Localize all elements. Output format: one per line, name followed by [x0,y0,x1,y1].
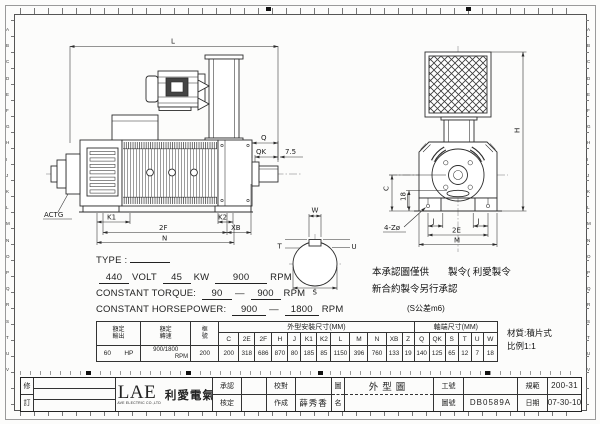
dim-value: 318 [239,346,255,362]
work-no-value [464,378,517,395]
col-header: 2E [239,333,255,346]
dim-value: 125 [429,346,445,362]
frame-no-header: 框 號 [191,322,219,346]
table-group-header-row: 額定 輸出 額定 轉速 框 號 外型安裝尺寸(MM) 軸端尺寸(MM) [97,322,498,333]
dim-label-18: 18 [400,192,408,201]
constant-hp-label: CONSTANT HORSEPOWER: [96,304,226,315]
type-value [130,262,170,263]
approve-label: 承認 [213,378,241,395]
logo-lae-text: LAE [118,385,156,401]
col-header: T [458,333,471,346]
dim-label-j-left: J [432,218,435,226]
logo-chinese-text: 利愛電氣 [165,387,212,403]
dim-label-m: M [454,237,460,245]
proof-made-values: 薛秀香 [296,378,332,411]
dim-label-w: W [312,207,319,215]
spec-rating-line: 440VOLT 45KW 900RPM [96,272,292,284]
dim-label-2f: 2F [159,224,167,232]
scale-note: 比例1:1 [507,340,536,352]
revision-label-bottom: 訂 [21,395,33,412]
hp-from: 900 [232,305,266,316]
rpm-value: 900 [215,273,267,284]
dim-label-u: U [352,243,357,251]
dim-label-t: T [277,243,283,251]
approval-note-line2: 新合約製令另行承認 [372,281,458,295]
revision-lines [34,378,115,411]
col-header: Z [402,333,414,346]
rated-speed-header: 額定 轉速 [141,322,191,346]
spec-torque-line: CONSTANT TORQUE: 90— 900RPM [96,288,305,300]
dim-value: 200 [219,346,239,362]
dim-label-7-5: 7.5 [285,148,296,156]
spec-horsepower-line: CONSTANT HORSEPOWER: 900— 1800RPM [96,304,343,316]
proof-made-labels: 校對 作成 [267,378,296,411]
drawing-name-label-top: 圖 [332,378,344,395]
volt-label: VOLT [132,272,157,283]
dim-value: 185 [301,346,317,362]
torque-from: 90 [202,289,232,300]
drawing-name-column: 外型圖 [345,378,434,411]
shaft-tolerance-note: (S公差m6) [407,303,445,314]
col-header: XB [386,333,402,346]
dim-label-actg: ACTG [44,211,63,219]
approve-value [242,378,266,395]
dim-value: 19 [402,346,414,362]
drawing-name-label-column: 圖 名 [332,378,345,411]
col-header: K1 [301,333,317,346]
rated-output-header: 額定 輸出 [97,322,141,346]
dash: — [269,304,279,315]
dim-label-k1: K1 [107,214,116,222]
spec-no-label: 規範 [518,378,547,395]
logo-english-text: LI AVE ELECTRIC CO.,LTD [116,401,161,405]
torque-to: 900 [251,289,281,300]
table-value-row: 60HP 900/1800RPM 200 2003186868708018585… [97,346,498,362]
col-header: J [288,333,301,346]
work-dwg-values: DB0589A [464,378,518,411]
revision-label-top: 修 [21,378,33,395]
drawing-no-label: 圖號 [434,395,463,412]
col-header: N [368,333,386,346]
rpm-label: RPM [270,272,292,283]
made-label: 作成 [267,395,295,412]
drawing-name-label-bottom: 名 [332,395,344,412]
dim-value: 85 [317,346,331,362]
dash: — [235,288,245,299]
check-label: 核定 [213,395,241,412]
col-header: M [350,333,368,346]
drawing-name-blank [345,395,433,412]
dim-label-s: S [313,289,318,297]
dim-label-l: L [171,38,175,46]
speed-unit: RPM [141,354,190,361]
dim-label-c: C [383,186,391,191]
drawing-name-value: 外型圖 [345,378,433,395]
dim-label-h: H [514,128,522,133]
spec-no-value: 200-31 [548,378,581,395]
check-value [242,395,266,412]
type-label: TYPE : [96,255,127,266]
col-header: L [331,333,350,346]
dim-label-2e: 2E [452,227,461,235]
dim-label-q: Q [261,134,267,142]
col-header: H [272,333,288,346]
constant-torque-label: CONSTANT TORQUE: [96,288,196,299]
col-header: 2F [255,333,272,346]
revision-entries-column [34,378,116,411]
hp-to: 1800 [285,305,319,316]
dim-value: 133 [386,346,402,362]
dim-value: 65 [445,346,458,362]
dim-value: 18 [483,346,497,362]
approve-check-values [242,378,267,411]
shaft-dims-group-header: 軸端尺寸(MM) [414,322,497,333]
rated-speed-value: 900/1800RPM [141,346,191,362]
dim-label-xb: XB [231,224,241,232]
dim-label-4z-holes: 4-Zø [384,224,401,232]
revision-label-column: 修 訂 [21,378,34,411]
work-dwg-labels: 工號 圖號 [434,378,464,411]
col-header: S [445,333,458,346]
torque-unit: RPM [284,288,306,299]
dimension-table: 額定 輸出 額定 轉速 框 號 外型安裝尺寸(MM) 軸端尺寸(MM) C2E2… [96,321,498,362]
hp-number: 60 [104,350,111,357]
col-header: U [471,333,483,346]
made-value: 薛秀香 [296,395,331,412]
hp-unit: RPM [322,304,344,315]
date-value: 07-30-10 [548,395,581,412]
dim-label-j-right: J [477,218,480,226]
spec-date-values: 200-31 07-30-10 [548,378,581,411]
spec-date-labels: 規範 日期 [518,378,548,411]
proof-value [296,378,331,395]
dim-value: 870 [272,346,288,362]
hp-unit: HP [124,350,133,357]
dim-value: 80 [288,346,301,362]
col-header: QK [429,333,445,346]
volt-value: 440 [99,273,129,284]
dim-label-n: N [162,235,167,243]
dim-label-k2: K2 [218,214,227,222]
work-no-label: 工號 [434,378,463,395]
col-header: C [219,333,239,346]
approve-check-labels: 承認 核定 [213,378,242,411]
material-note: 材質:積片式 [507,327,552,339]
kw-value: 45 [163,273,191,284]
mounting-dims-group-header: 外型安裝尺寸(MM) [219,322,414,333]
proof-label: 校對 [267,378,295,395]
side-view: ACTG L Q QK 7.5 K1 K2 2F XB N [43,38,303,246]
spec-type-line: TYPE : [96,255,173,266]
col-header: Q [414,333,429,346]
rated-output-value: 60HP [97,346,141,362]
end-view: H C 18 J J 2E M 4-Zø [383,46,527,252]
dim-value: 7 [471,346,483,362]
approval-note-line1: 本承認圖僅供 製令( 利愛製令 [372,264,511,278]
dim-value: 396 [350,346,368,362]
col-header: K2 [317,333,331,346]
dim-value: 686 [255,346,272,362]
col-header: W [483,333,497,346]
dim-value: 760 [368,346,386,362]
dim-value: 1150 [331,346,350,362]
frame-no-value: 200 [191,346,219,362]
drawing-sheet: ABCDEFGHIJKLMNOPQRSTUV ABCDEFGHIJKLMNOPQ… [0,0,600,424]
date-label: 日期 [518,395,547,412]
dim-value: 12 [458,346,471,362]
dim-value: 140 [414,346,429,362]
title-block: 修 訂 LAE LI AVE ELECTRIC CO.,LTD 利愛電氣 承認 … [20,377,582,412]
kw-label: KW [194,272,210,283]
dim-label-qk: QK [256,148,267,156]
drawing-no-value: DB0589A [464,395,517,412]
company-logo-cell: LAE LI AVE ELECTRIC CO.,LTD 利愛電氣 [116,378,213,411]
